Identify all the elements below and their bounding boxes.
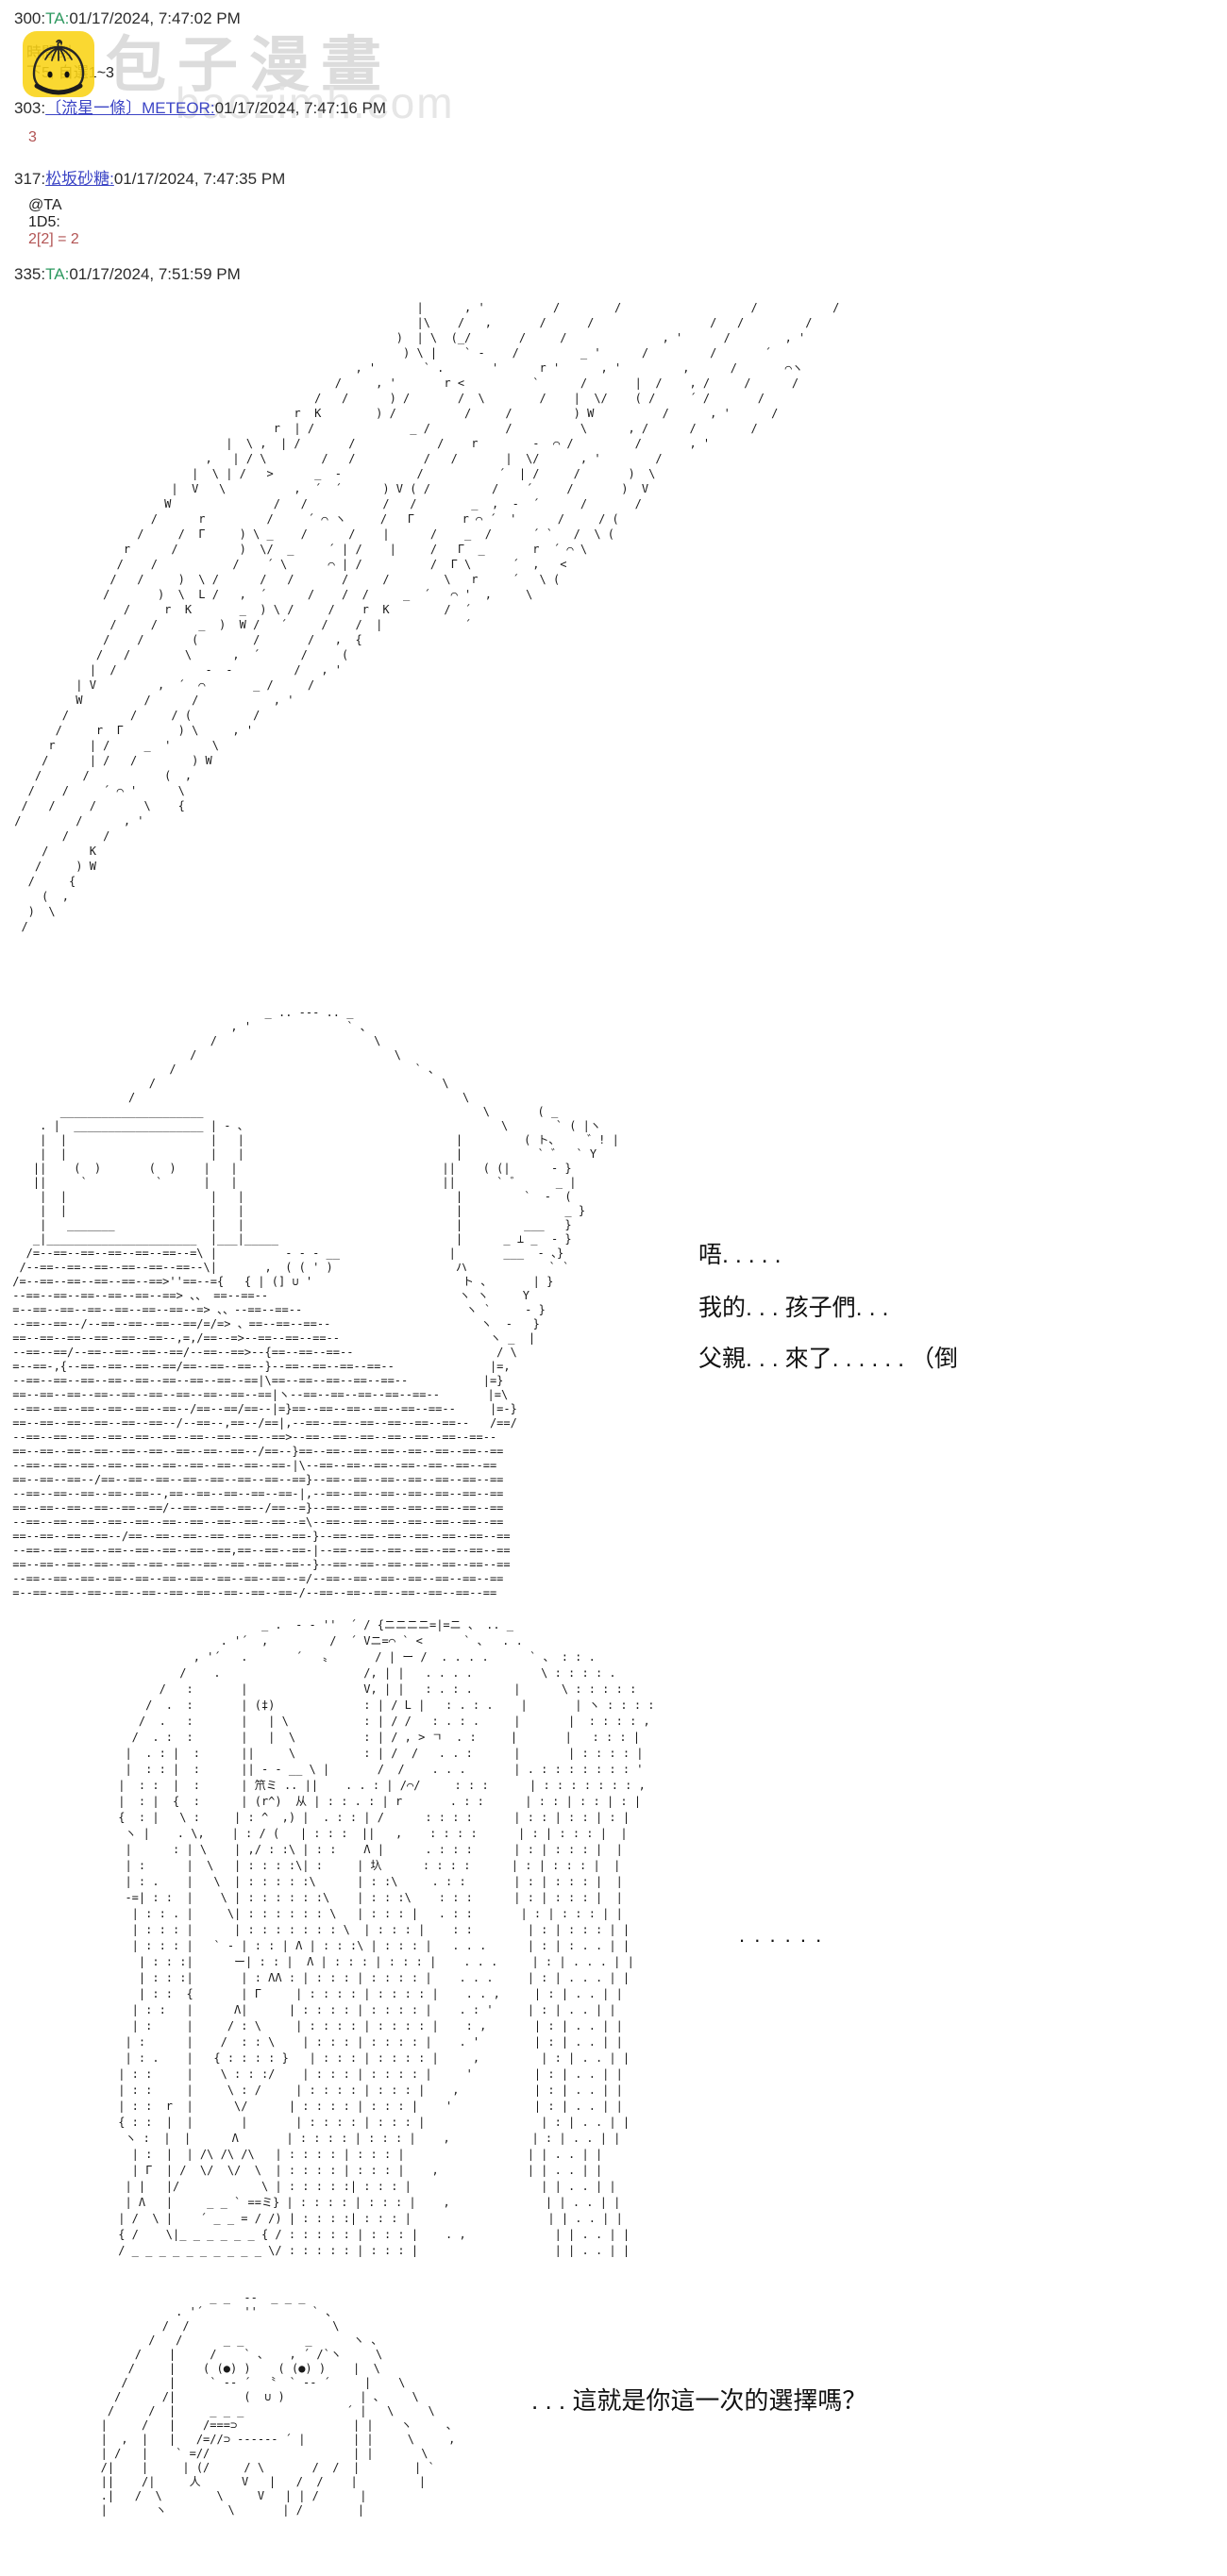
post-timestamp: 01/17/2024, 7:47:02 PM <box>69 9 240 27</box>
ascii-art-creature: _ _ -- _ _ _ . '´ '' ` 、 / / \ / / _ _ _… <box>80 2291 458 2532</box>
mention-text: @TA <box>28 197 62 214</box>
ascii-art-speed-lines: | , ' / / / / |\ / , / / / / / <box>8 300 839 934</box>
dialogue-ellipsis: . . . . . . <box>739 1923 823 1948</box>
dice-roll-result: 2[2] = 2 <box>28 231 79 248</box>
post-timestamp: 01/17/2024, 7:47:16 PM <box>215 99 386 117</box>
dice-command: 1D5: <box>28 214 60 231</box>
dialogue-line: . . . 這就是你這一次的選擇嗎？ <box>531 2382 866 2417</box>
dialogue-line: 父親. . . 來了. . . . . . （倒 <box>698 1340 958 1374</box>
post-header-303: 303〔流星一條〕METEOR01/17/2024, 7:47:16 PM <box>14 94 386 118</box>
post-number: 303 <box>14 99 45 117</box>
post-header-300: 300TA01/17/2024, 7:47:02 PM <box>14 9 241 28</box>
ascii-art-priest-figure: _ . - ‐ '' ´ / {ニニニニ=|=ニ 、 .. _ . '´ , /… <box>111 1617 655 2259</box>
ascii-art-robot-scene: _ .. -‐- .. _ , ' ` 、 / \ / \ <box>6 1006 619 1600</box>
post-author-ta: TA <box>45 9 69 27</box>
post-timestamp: 01/17/2024, 7:51:59 PM <box>69 265 240 283</box>
post-author-link[interactable]: 〔流星一條〕METEOR <box>45 99 214 117</box>
baozi-logo-icon <box>23 31 94 97</box>
post-number: 317 <box>14 170 45 188</box>
post-header-335: 335TA01/17/2024, 7:51:59 PM <box>14 265 241 284</box>
post-author-ta: TA <box>45 265 69 283</box>
thread-page: 包子漫畫 baozimh.com 300TA01/17/2024, 7:47:0… <box>0 0 1227 2576</box>
post-author-link[interactable]: 松坂砂糖 <box>45 170 114 188</box>
post-number: 335 <box>14 265 45 283</box>
dice-roll-result: 3 <box>28 129 37 146</box>
dialogue-line: 唔. . . . . <box>698 1236 782 1270</box>
post-number: 300 <box>14 9 45 27</box>
dialogue-line: 我的. . . 孩子們. . . <box>698 1289 888 1323</box>
post-header-317: 317松坂砂糖01/17/2024, 7:47:35 PM <box>14 165 285 189</box>
post-timestamp: 01/17/2024, 7:47:35 PM <box>114 170 285 188</box>
